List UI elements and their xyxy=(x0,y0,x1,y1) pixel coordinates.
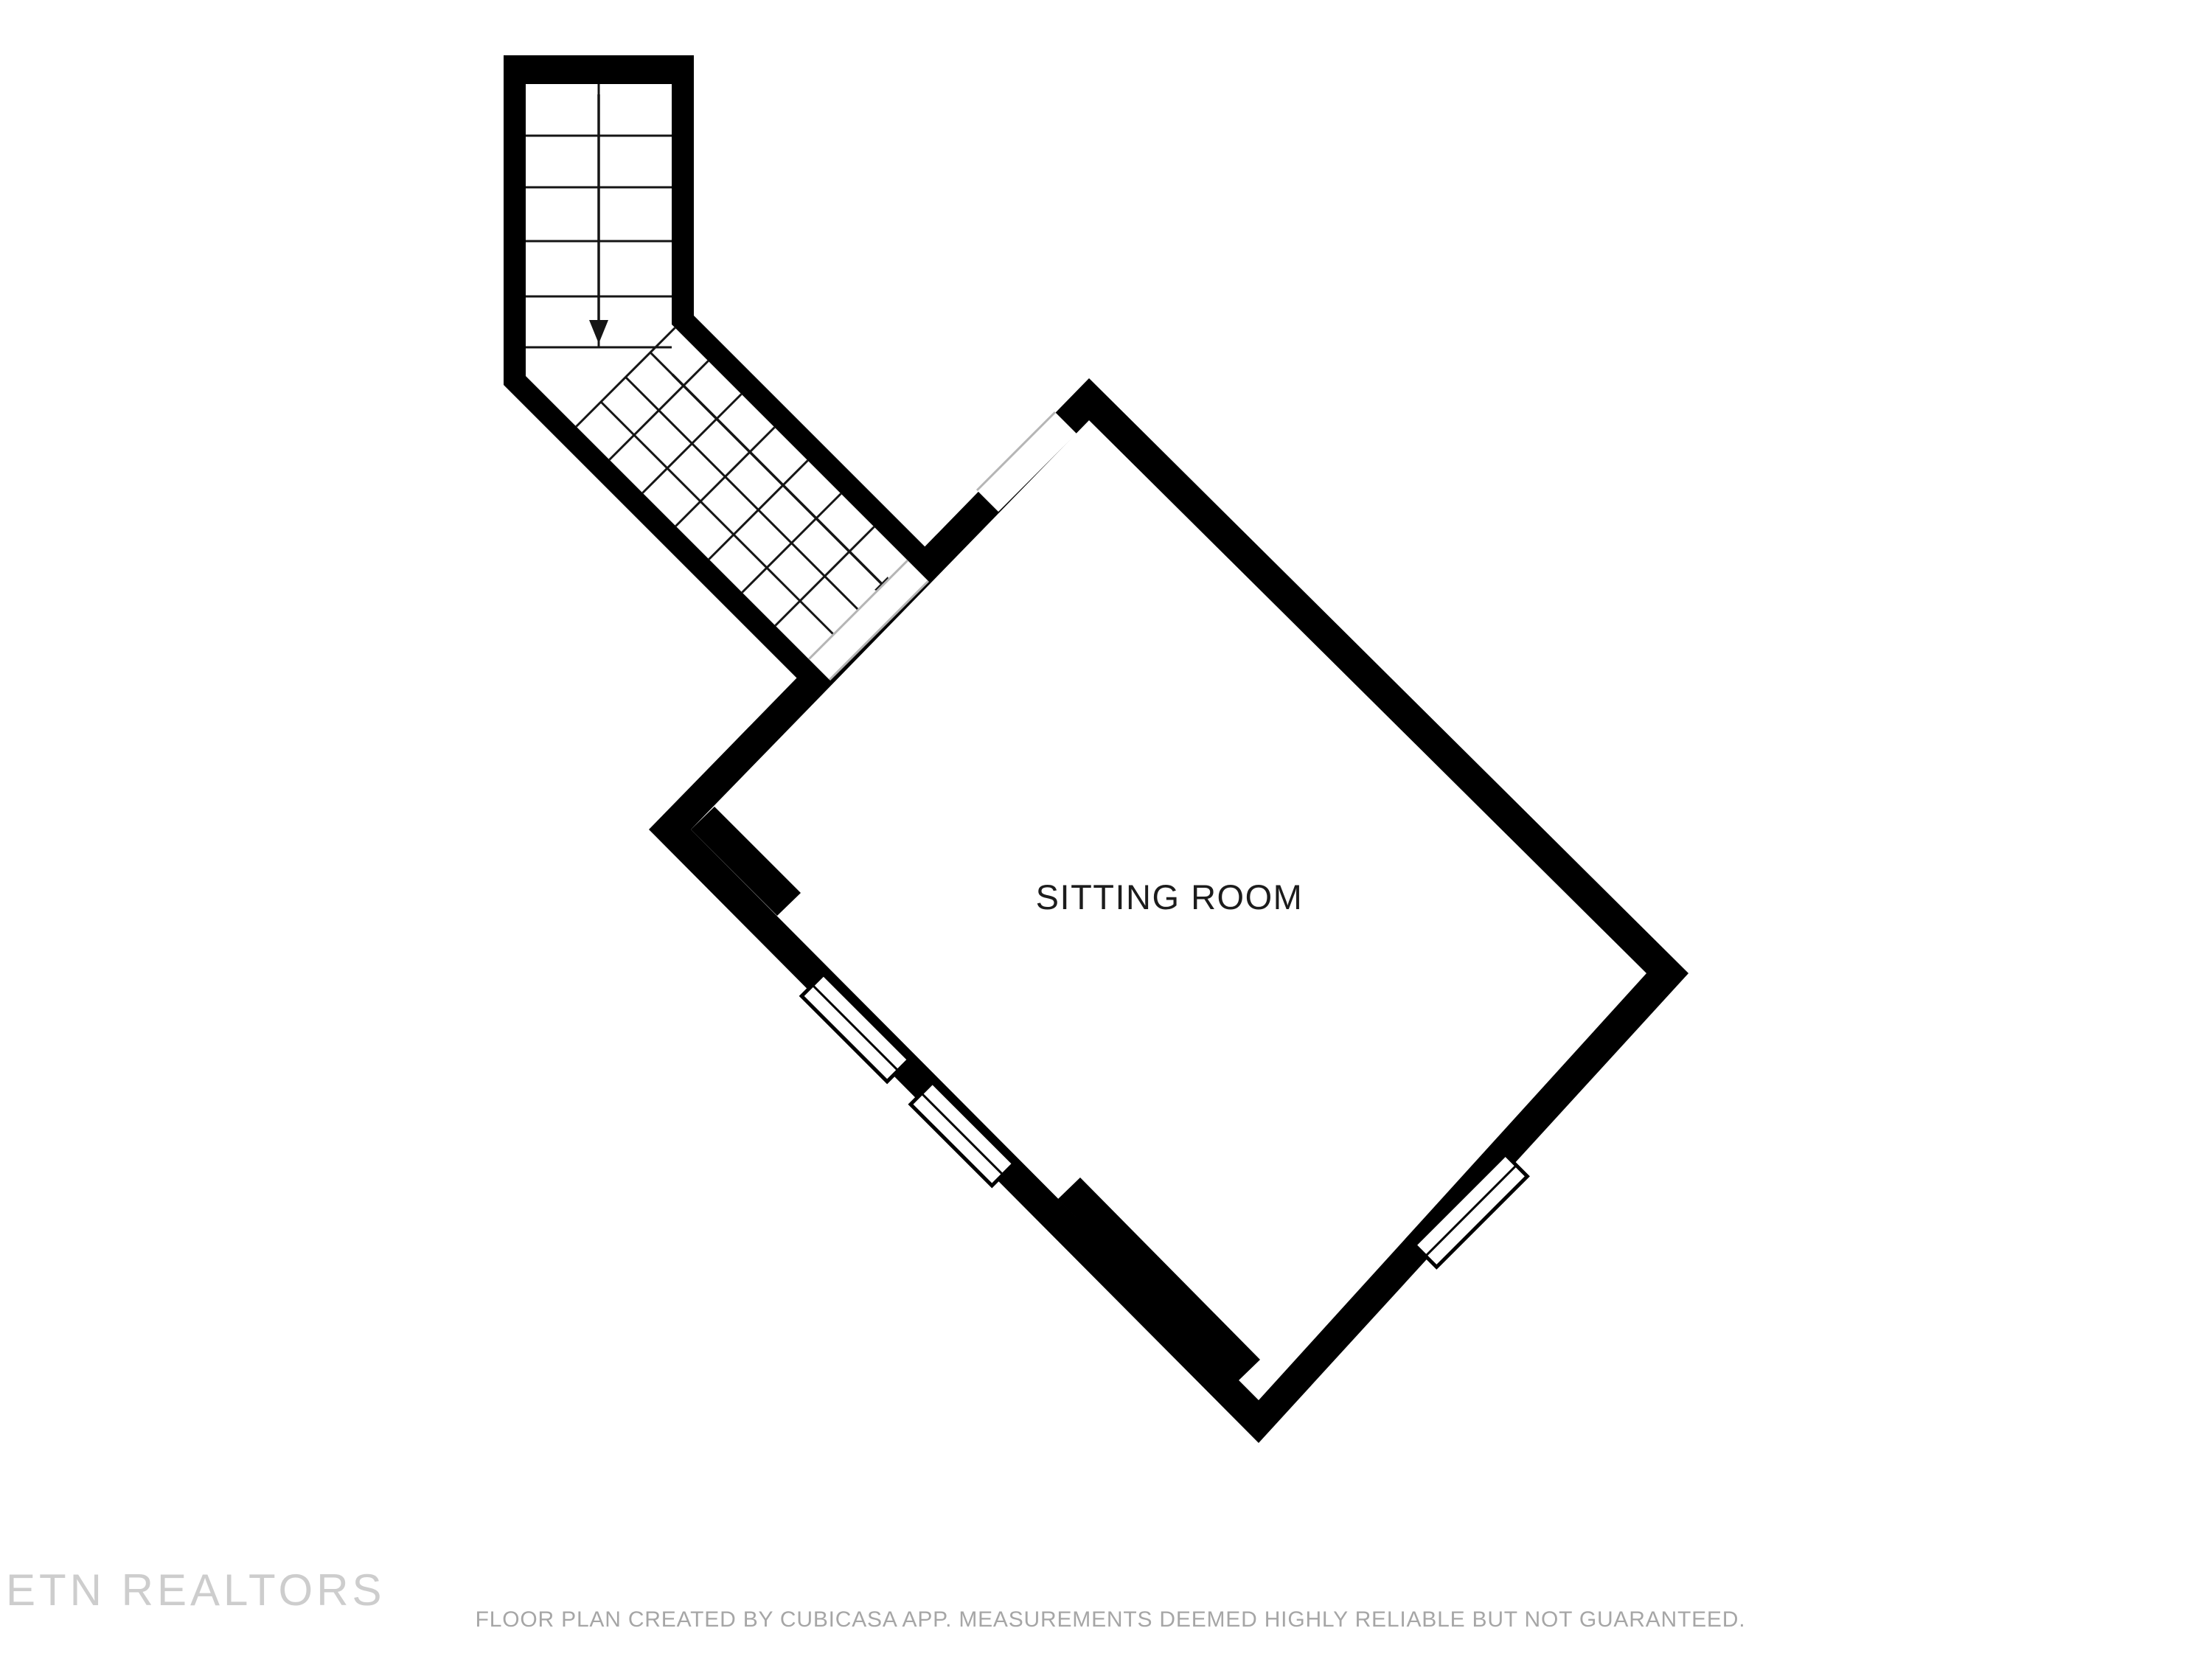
door-opening-top xyxy=(977,412,1077,512)
stair-guide-line xyxy=(626,378,858,610)
down-arrow-icon xyxy=(589,320,608,344)
watermark: ETN REALTORS xyxy=(6,1565,386,1615)
window xyxy=(911,1082,1014,1186)
stair-straight-flight xyxy=(526,84,672,347)
disclaimer-text: FLOOR PLAN CREATED BY CUBICASA APP. MEAS… xyxy=(476,1607,1746,1632)
floor-plan-canvas: SITTING ROOM ETN REALTORS FLOOR PLAN CRE… xyxy=(0,0,2212,1659)
sitting-room: SITTING ROOM xyxy=(649,378,1688,1443)
wall-thickening-bottom xyxy=(1058,1178,1260,1381)
door-opening-gap xyxy=(977,412,1077,512)
window xyxy=(801,974,909,1082)
room-label: SITTING ROOM xyxy=(1036,877,1304,917)
